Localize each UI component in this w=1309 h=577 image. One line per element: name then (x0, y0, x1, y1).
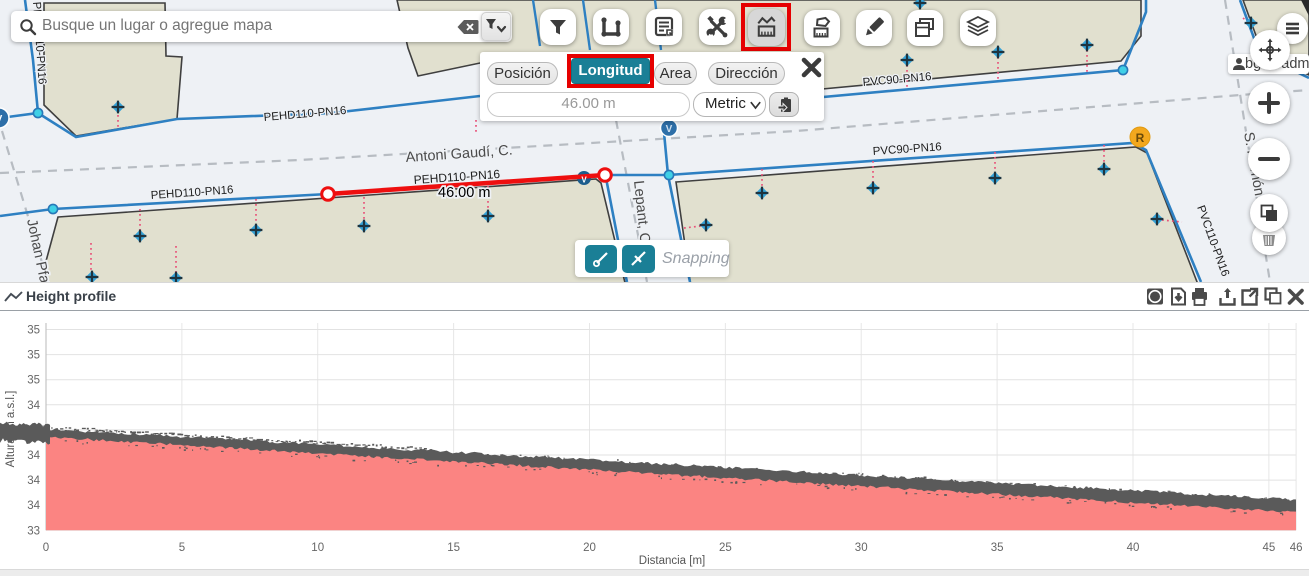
svg-text:30: 30 (855, 542, 868, 554)
svg-text:V: V (666, 124, 673, 135)
svg-text:40: 40 (1127, 542, 1140, 554)
svg-text:V: V (581, 176, 587, 185)
svg-text:35: 35 (27, 325, 40, 337)
svg-text:46: 46 (1290, 542, 1303, 554)
svg-text:35: 35 (27, 350, 40, 362)
svg-text:46.00 m: 46.00 m (438, 185, 490, 201)
svg-text:34: 34 (27, 400, 40, 412)
svg-text:20: 20 (583, 542, 596, 554)
svg-text:35: 35 (27, 375, 40, 387)
svg-text:45: 45 (1263, 542, 1276, 554)
svg-text:34: 34 (27, 450, 40, 462)
svg-text:V: V (0, 114, 3, 125)
svg-text:34: 34 (27, 475, 40, 487)
svg-text:34: 34 (27, 500, 40, 512)
svg-text:Distancia [m]: Distancia [m] (639, 555, 705, 567)
svg-text:15: 15 (447, 542, 460, 554)
svg-text:0: 0 (43, 542, 49, 554)
svg-text:25: 25 (719, 542, 732, 554)
svg-text:5: 5 (179, 542, 185, 554)
svg-text:R: R (1136, 131, 1145, 145)
svg-text:35: 35 (991, 542, 1004, 554)
svg-text:33: 33 (27, 525, 40, 537)
svg-text:10: 10 (311, 542, 324, 554)
